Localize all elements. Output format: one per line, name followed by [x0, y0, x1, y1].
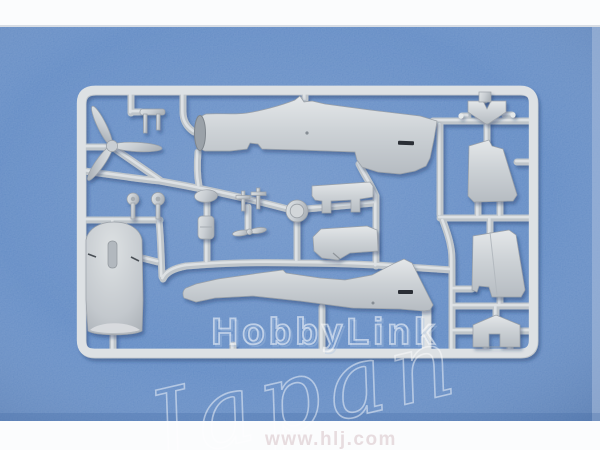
stabilizer-slot-lower: [398, 290, 413, 294]
product-photo: HobbyLink HobbyLink Japan www.hlj.com: [0, 0, 600, 450]
stabilizer-slot-upper: [398, 141, 414, 146]
watermark-url: www.hlj.com: [264, 429, 397, 450]
fuselage-hole-lower: [372, 302, 375, 305]
cowl-flap-tab: [479, 92, 491, 102]
cowling-scoop: [108, 241, 117, 268]
sprue-photo-canvas: HobbyLink HobbyLink Japan www.hlj.com: [0, 0, 600, 450]
stub-ball: [510, 112, 515, 117]
fuselage-hole-upper: [305, 131, 308, 134]
cowl-opening: [195, 116, 206, 151]
top-strip-shadow: [0, 25, 600, 27]
stub-ball: [458, 113, 463, 118]
engine-cowling: [86, 222, 143, 335]
photo-right-edge-light: [592, 27, 600, 421]
propeller-hub: [106, 140, 117, 151]
round-boss: [286, 200, 308, 222]
